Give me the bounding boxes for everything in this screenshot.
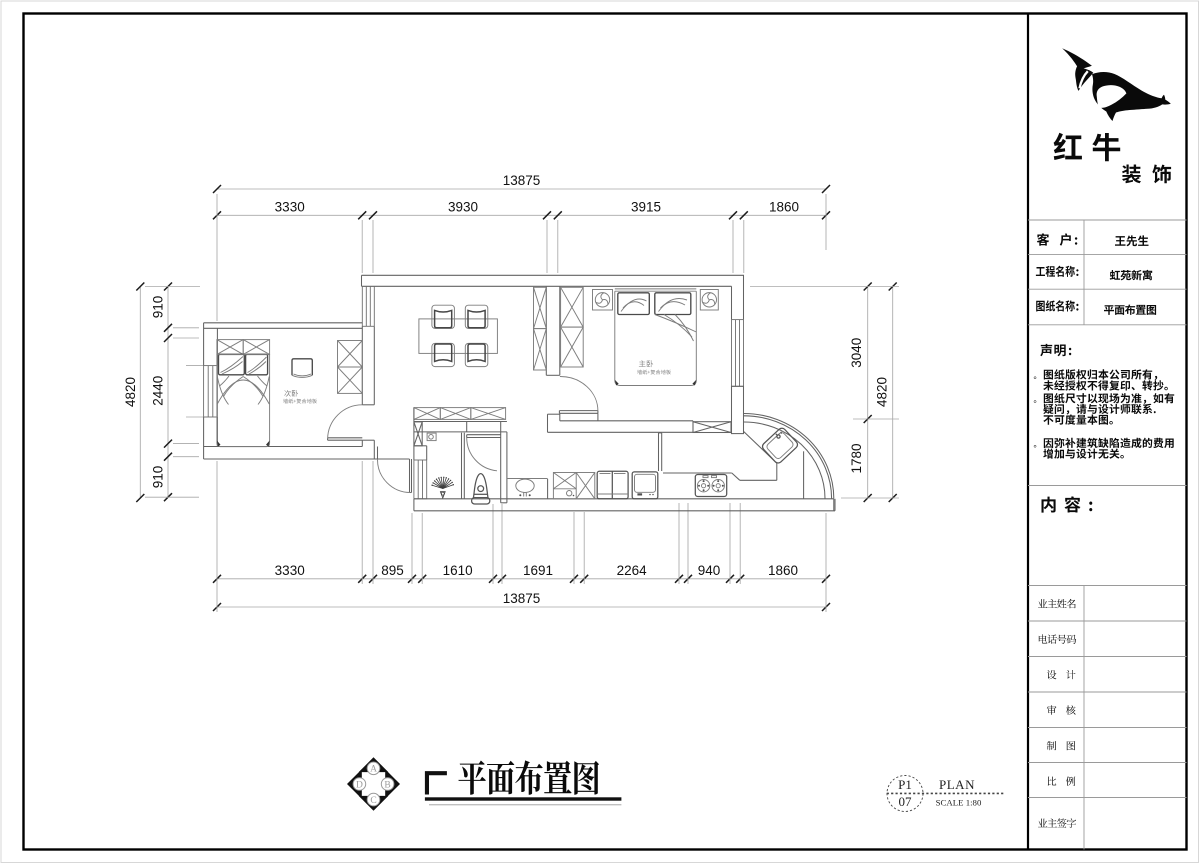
svg-text:1860: 1860 [769, 200, 799, 215]
svg-text:PLAN: PLAN [939, 777, 975, 792]
svg-text:910: 910 [151, 466, 166, 489]
svg-text:3330: 3330 [275, 563, 305, 578]
svg-text:895: 895 [381, 563, 404, 578]
svg-text:13875: 13875 [503, 173, 541, 188]
svg-text:B: B [384, 780, 390, 790]
svg-text:P1: P1 [898, 777, 912, 792]
svg-text:1860: 1860 [768, 563, 798, 578]
svg-text:3930: 3930 [448, 200, 478, 215]
svg-text:1780: 1780 [849, 443, 864, 473]
svg-text:910: 910 [151, 296, 166, 319]
svg-text:SCALE 1:80: SCALE 1:80 [936, 798, 982, 808]
svg-text:13875: 13875 [503, 591, 541, 606]
svg-text:2440: 2440 [151, 376, 166, 406]
svg-text:D: D [356, 780, 363, 790]
svg-text:2264: 2264 [617, 563, 648, 578]
svg-text:4820: 4820 [123, 377, 138, 407]
svg-text:A: A [370, 765, 377, 775]
svg-text:3330: 3330 [275, 200, 305, 215]
svg-text:1691: 1691 [523, 563, 553, 578]
svg-text:C: C [370, 796, 376, 806]
svg-text:07: 07 [899, 794, 913, 809]
svg-text:1610: 1610 [443, 563, 473, 578]
svg-text:4820: 4820 [874, 377, 889, 407]
svg-text:940: 940 [698, 563, 721, 578]
svg-text:3915: 3915 [631, 200, 661, 215]
svg-text:3040: 3040 [849, 338, 864, 368]
